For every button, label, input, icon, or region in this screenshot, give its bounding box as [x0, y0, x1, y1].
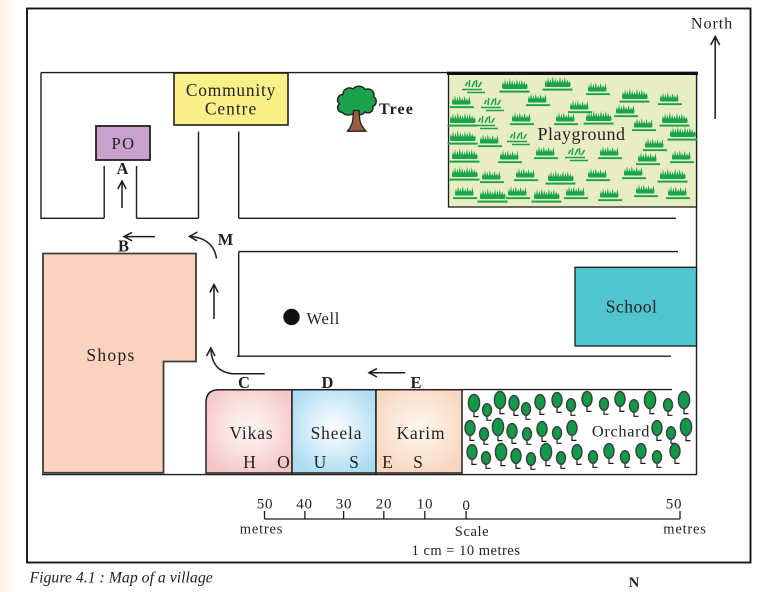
svg-text:M: M — [218, 230, 234, 249]
svg-text:50: 50 — [666, 497, 683, 513]
svg-text:metres: metres — [663, 522, 706, 538]
svg-text:O: O — [277, 452, 290, 472]
svg-text:Scale: Scale — [455, 524, 489, 540]
svg-text:U: U — [314, 452, 327, 472]
svg-text:Karim: Karim — [397, 423, 446, 443]
svg-text:Tree: Tree — [379, 101, 414, 118]
svg-text:Community: Community — [186, 80, 276, 100]
svg-text:N: N — [629, 575, 640, 591]
svg-text:Playground: Playground — [538, 124, 626, 144]
svg-text:10: 10 — [417, 497, 434, 513]
svg-text:School: School — [606, 296, 658, 316]
svg-text:Well: Well — [307, 309, 341, 328]
svg-text:metres: metres — [240, 522, 283, 538]
svg-text:1 cm = 10 metres: 1 cm = 10 metres — [412, 543, 521, 559]
svg-text:20: 20 — [376, 497, 393, 513]
svg-text:Figure 4.1 : Map of a village: Figure 4.1 : Map of a village — [29, 570, 213, 587]
svg-text:0: 0 — [462, 498, 470, 514]
svg-text:S: S — [349, 452, 359, 472]
svg-text:A: A — [117, 159, 129, 178]
svg-text:Vikas: Vikas — [229, 423, 273, 443]
svg-text:Orchard: Orchard — [592, 422, 650, 441]
svg-text:Sheela: Sheela — [311, 423, 363, 443]
svg-text:E: E — [382, 452, 393, 472]
svg-text:S: S — [413, 452, 423, 472]
svg-text:H: H — [243, 452, 256, 472]
svg-text:Shops: Shops — [86, 345, 135, 365]
svg-text:Centre: Centre — [205, 99, 257, 119]
svg-text:North: North — [691, 15, 733, 33]
svg-text:40: 40 — [296, 497, 313, 513]
svg-text:PO: PO — [111, 134, 135, 153]
svg-text:30: 30 — [336, 497, 353, 513]
svg-text:50: 50 — [257, 497, 274, 513]
